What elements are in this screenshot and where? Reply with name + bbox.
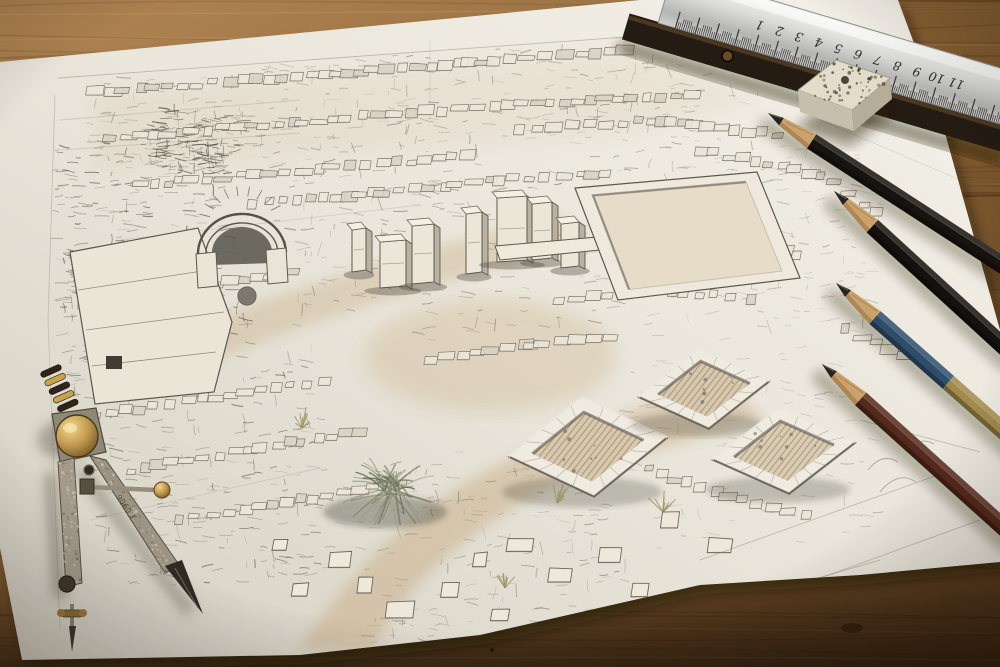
ruins-sketch-photo: Detailed graphite pencil sketch of ancie… [0,0,1000,667]
photo-vignette [0,0,1000,667]
photo-canvas: Detailed graphite pencil sketch of ancie… [0,0,1000,667]
